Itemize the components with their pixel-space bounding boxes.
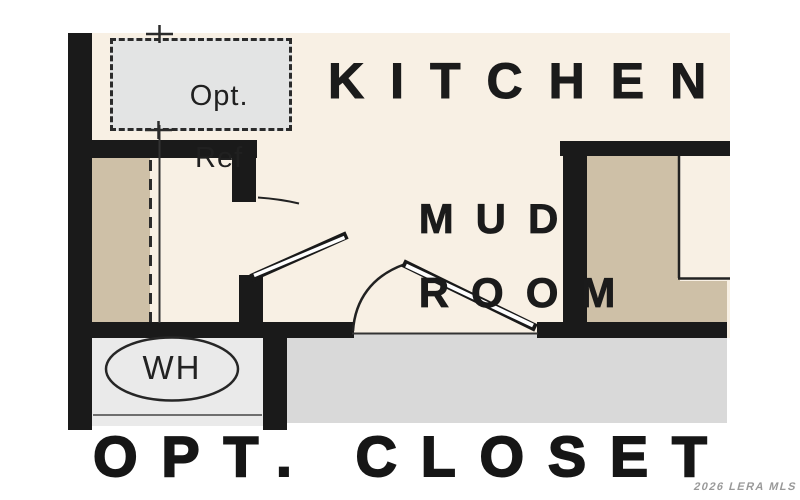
opt-ref-label-line2: Ref	[195, 142, 243, 174]
optional-closet-label: OPT. CLOSET	[0, 429, 800, 486]
mud-room-label-line1: MUD	[419, 195, 581, 242]
water-heater-label: WH	[106, 348, 238, 388]
opt-ref-label-line1: Opt.	[190, 80, 249, 112]
optional-refrigerator-label: Opt. Ref	[110, 50, 292, 205]
floor-plan-canvas: KITCHEN MUD ROOM Opt. Ref WH OPT. CLOSET…	[0, 0, 800, 500]
counter-outline	[678, 156, 730, 279]
mud-room-label-line2: ROOM	[419, 269, 638, 316]
mls-watermark: 2026 LERA MLS	[693, 481, 799, 493]
center-mark-top	[146, 25, 173, 43]
kitchen-label: KITCHEN	[328, 56, 732, 106]
mud-room-label: MUD ROOM	[262, 163, 552, 348]
